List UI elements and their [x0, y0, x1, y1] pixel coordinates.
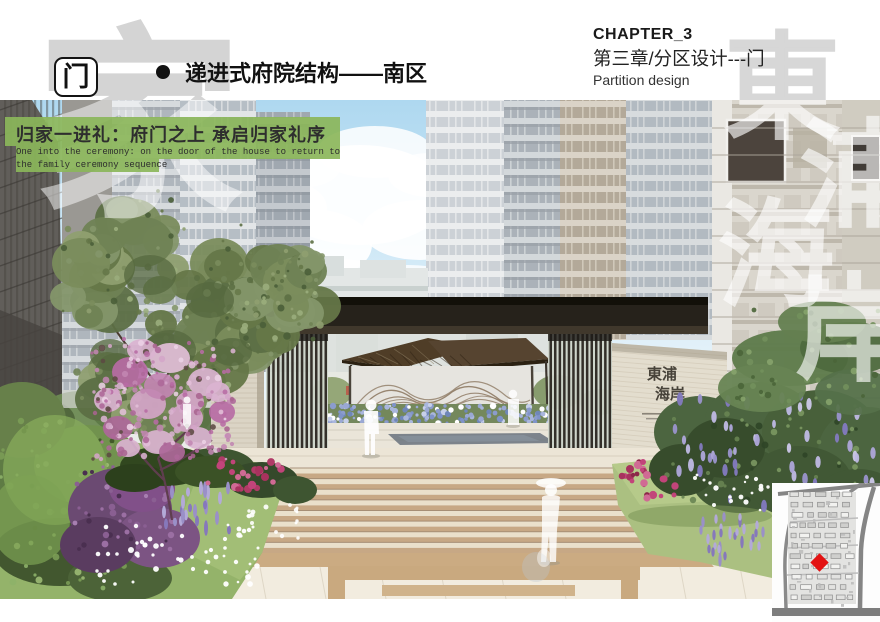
svg-text:東浦: 東浦 [647, 365, 677, 383]
svg-text:岸: 岸 [796, 268, 880, 396]
